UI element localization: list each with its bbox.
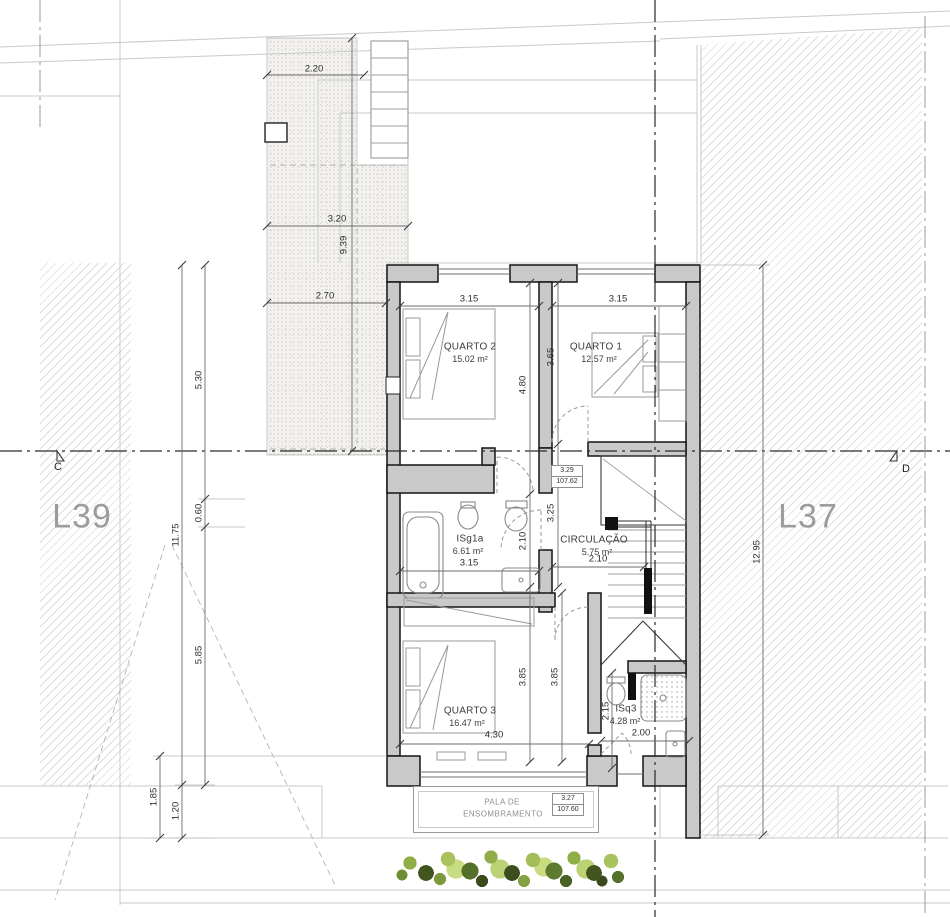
dim-quarto1-depth: 3.65 [546, 348, 557, 367]
dim-terrace-width3: 2.70 [316, 291, 335, 302]
room-name-circulacao: CIRCULAÇÃO [560, 535, 628, 546]
dim-left-060: 0.60 [194, 504, 205, 523]
dim-left-585: 5.85 [194, 646, 205, 665]
dim-terrace-width2: 3.20 [328, 214, 347, 225]
dim-terrace-height: 9.39 [339, 236, 350, 255]
floor-plan-page: 3.29 107.62 3.27 107.60 L39 L37 C D 2.20… [0, 0, 950, 917]
room-name-isq3: ISq3 [615, 704, 636, 715]
room-area-quarto2: 15.02 m² [452, 354, 488, 364]
dim-left-185: 1.85 [149, 788, 160, 807]
room-name-quarto2: QUARTO 2 [444, 342, 496, 353]
lot-label-l37: L37 [778, 498, 838, 537]
room-area-quarto1: 12.57 m² [581, 354, 617, 364]
canopy-label-line2: ENSOMBRAMENTO [463, 810, 543, 819]
dim-left-530: 5.30 [194, 371, 205, 390]
dim-left-1175: 11.75 [171, 523, 182, 546]
dim-quarto2-depth: 4.80 [518, 376, 529, 395]
dim-terrace-width1: 2.20 [305, 64, 324, 75]
labels-layer: L39 L37 C D 2.20 3.20 9.39 2.70 3.15 3.1… [0, 0, 950, 917]
dim-quarto2-width: 3.15 [460, 294, 479, 305]
section-marker-c: C [54, 461, 62, 473]
dim-left-120: 1.20 [171, 802, 182, 821]
room-name-quarto1: QUARTO 1 [570, 342, 622, 353]
dim-isq3-width: 2.00 [632, 728, 651, 739]
room-name-isg1a: ISg1a [456, 534, 483, 545]
room-area-isg1a: 6.61 m² [453, 546, 484, 556]
room-name-quarto3: QUARTO 3 [444, 706, 496, 717]
dim-quarto3-depth2: 3.85 [550, 668, 561, 687]
dim-quarto3-depth1: 3.85 [518, 668, 529, 687]
dim-isg1a-depth: 2.10 [518, 532, 529, 551]
room-area-isq3: 4.28 m² [610, 716, 641, 726]
dim-hall-depth: 3.25 [546, 504, 557, 523]
room-area-circulacao: 5.75 m² [582, 547, 613, 557]
section-marker-d: D [902, 463, 910, 475]
canopy-label-line1: PALA DE [484, 798, 520, 807]
lot-label-l39: L39 [52, 498, 112, 537]
dim-quarto3-width: 4.30 [485, 730, 504, 741]
dim-quarto1-width: 3.15 [609, 294, 628, 305]
dim-right-1295: 12.95 [752, 540, 763, 564]
room-area-quarto3: 16.47 m² [449, 718, 485, 728]
dim-isg1a-width: 3.15 [460, 558, 479, 569]
